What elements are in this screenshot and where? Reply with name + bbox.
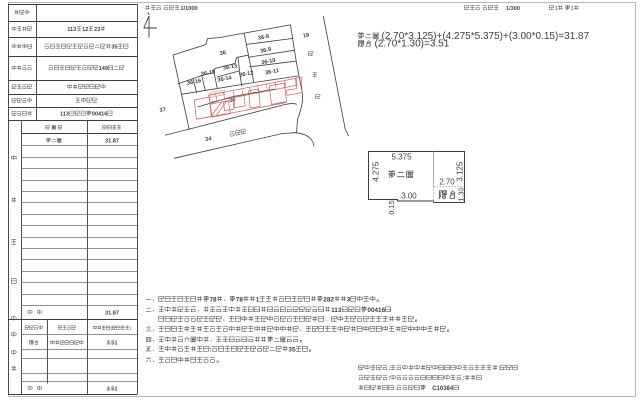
svg-text::: :	[462, 376, 464, 382]
svg-text:00416: 00416	[367, 307, 385, 314]
svg-text:36-9: 36-9	[260, 47, 272, 55]
svg-text:36-10: 36-10	[261, 58, 276, 67]
svg-text:36-16: 36-16	[187, 78, 202, 87]
svg-text:3.51: 3.51	[107, 387, 118, 393]
svg-text:78: 78	[210, 297, 218, 304]
svg-text::: :	[388, 376, 390, 382]
svg-text:1/300: 1/300	[506, 6, 520, 12]
svg-text:36-12: 36-12	[239, 70, 254, 79]
svg-text:19: 19	[302, 32, 309, 39]
svg-text:4.275: 4.275	[371, 161, 380, 182]
svg-text:113: 113	[67, 27, 76, 33]
svg-text:3.00: 3.00	[401, 192, 417, 201]
svg-text:36-15: 36-15	[201, 69, 216, 78]
svg-text:0.15: 0.15	[387, 200, 396, 214]
svg-text:149: 149	[99, 66, 108, 72]
svg-text:282: 282	[323, 297, 334, 304]
svg-text:3: 3	[347, 297, 351, 304]
svg-text:35: 35	[111, 45, 117, 51]
svg-text:113: 113	[331, 307, 342, 314]
svg-text:1: 1	[571, 6, 574, 12]
svg-text:1.30: 1.30	[457, 188, 466, 202]
svg-text:23: 23	[94, 27, 100, 33]
svg-text:36-8: 36-8	[258, 34, 270, 42]
svg-text:31.87: 31.87	[105, 311, 119, 317]
svg-text:C10384: C10384	[432, 386, 454, 392]
svg-text::: :	[388, 366, 390, 372]
svg-text:36-11: 36-11	[265, 68, 280, 76]
svg-text:3.125: 3.125	[455, 161, 464, 182]
svg-text:34: 34	[205, 136, 213, 143]
svg-text:3.51: 3.51	[107, 341, 118, 347]
svg-text:36-13: 36-13	[223, 63, 238, 72]
svg-text:12: 12	[82, 27, 88, 33]
svg-text:35: 35	[288, 347, 296, 354]
svg-text:5.375: 5.375	[392, 152, 413, 161]
svg-text::: :	[394, 386, 396, 392]
svg-text:37: 37	[159, 107, 166, 114]
svg-text:1/1000: 1/1000	[181, 6, 198, 12]
svg-text:78: 78	[236, 297, 244, 304]
svg-text:113: 113	[60, 112, 69, 118]
svg-text:31.87: 31.87	[105, 139, 119, 145]
svg-text::: :	[498, 366, 500, 372]
svg-text:1: 1	[256, 297, 260, 304]
svg-text:(2.70*1.30)=3.51: (2.70*1.30)=3.51	[375, 39, 450, 50]
svg-text:36: 36	[219, 50, 226, 57]
svg-text:00416: 00416	[92, 112, 108, 118]
svg-text:): )	[130, 326, 132, 331]
svg-text:2.70: 2.70	[439, 177, 455, 186]
svg-text::: :	[210, 347, 212, 354]
svg-text:1: 1	[555, 6, 558, 12]
